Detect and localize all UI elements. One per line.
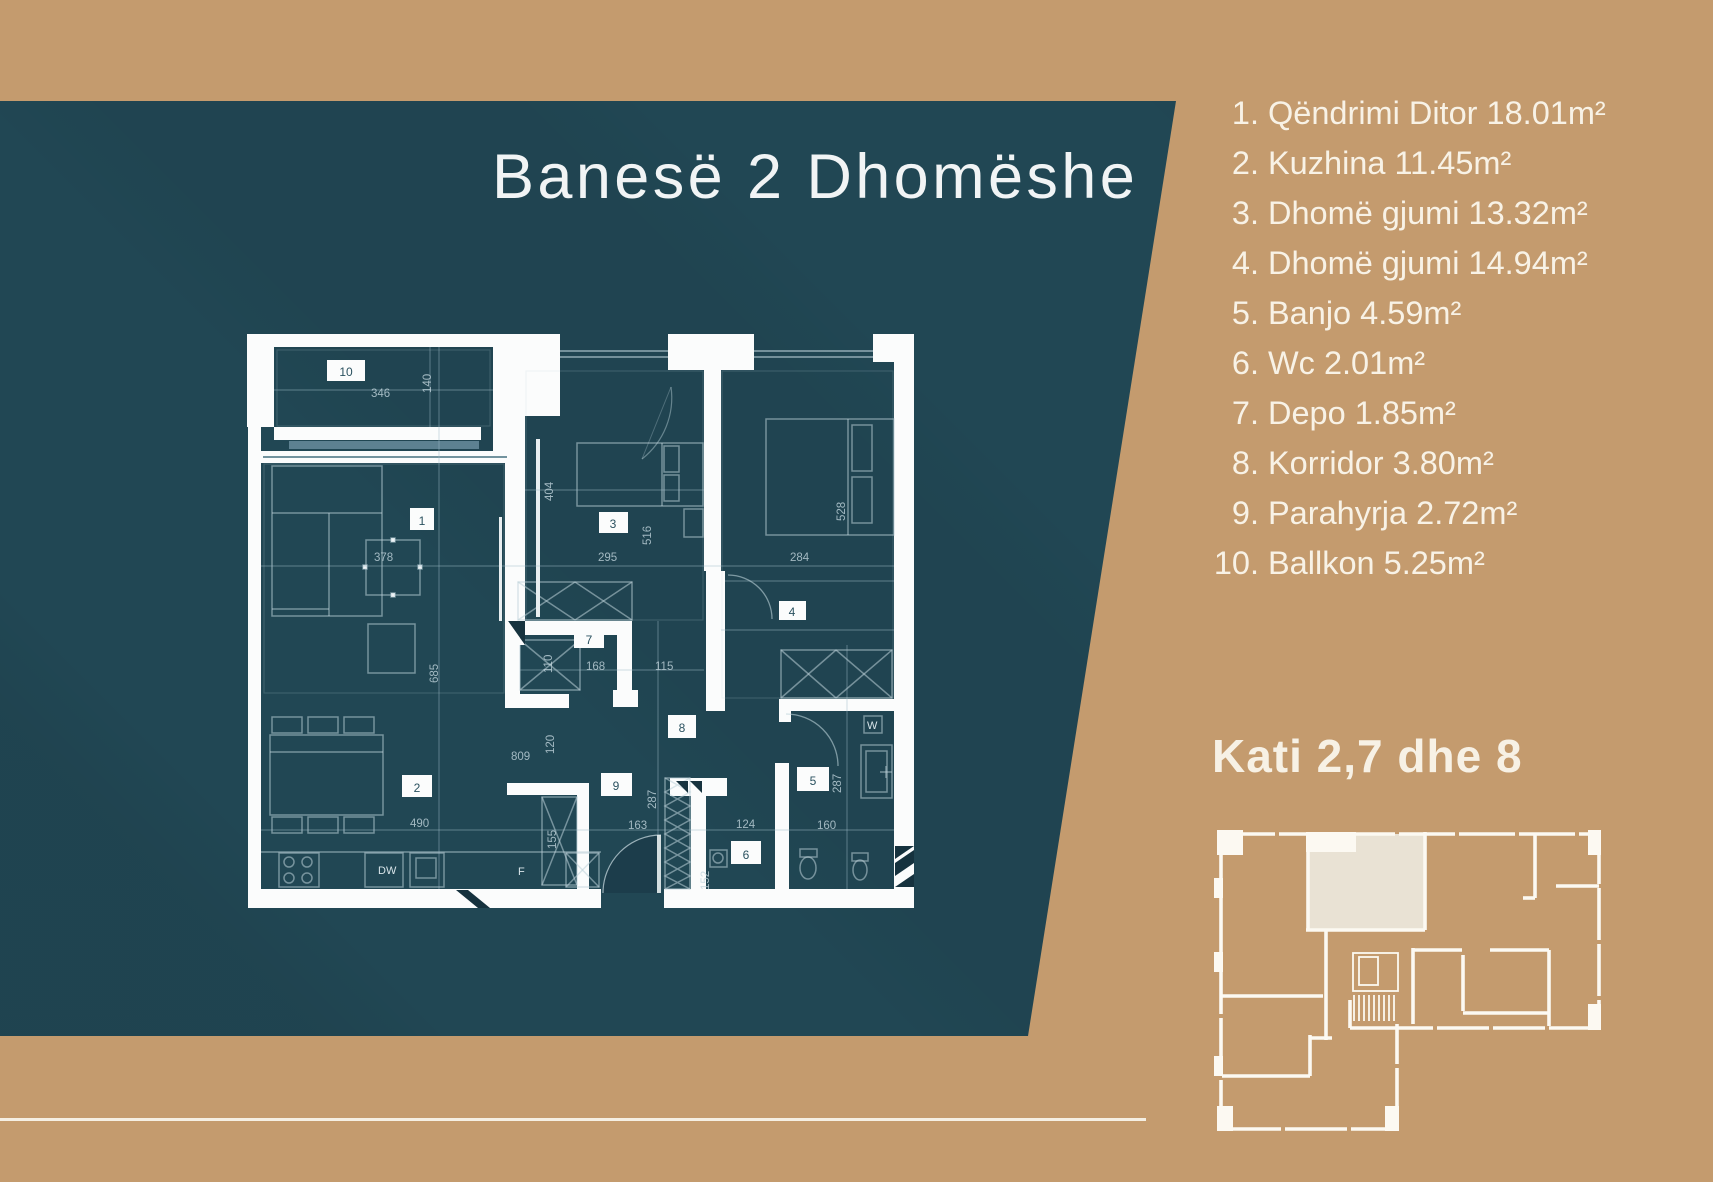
svg-text:110: 110 [543,655,555,673]
svg-text:5: 5 [810,774,817,788]
svg-text:120: 120 [545,735,557,754]
svg-text:4: 4 [789,605,796,619]
svg-text:124: 124 [736,819,756,831]
svg-text:378: 378 [374,552,393,564]
svg-text:DW: DW [378,865,397,877]
svg-text:528: 528 [836,502,848,521]
svg-text:516: 516 [642,526,654,545]
svg-text:287: 287 [647,790,659,809]
svg-text:168: 168 [586,661,605,673]
svg-text:140: 140 [422,374,434,393]
svg-text:6: 6 [743,848,750,862]
svg-text:9: 9 [613,779,620,793]
svg-text:2: 2 [414,781,421,795]
svg-text:163: 163 [628,820,647,832]
svg-text:155: 155 [547,830,559,849]
svg-text:287: 287 [832,774,844,793]
svg-text:284: 284 [790,552,810,564]
svg-text:404: 404 [544,481,556,501]
svg-text:1: 1 [419,514,426,528]
svg-text:7: 7 [586,633,593,647]
svg-text:F: F [518,866,525,878]
svg-text:160: 160 [817,820,836,832]
svg-text:3: 3 [610,517,617,531]
svg-text:346: 346 [371,388,390,400]
svg-text:490: 490 [410,818,429,830]
svg-text:115: 115 [655,661,673,673]
svg-text:295: 295 [598,552,617,564]
svg-text:809: 809 [511,751,530,763]
svg-text:8: 8 [679,721,686,735]
svg-text:W: W [867,720,878,732]
svg-text:685: 685 [429,664,441,683]
svg-text:10: 10 [339,365,353,379]
svg-text:152: 152 [700,871,712,890]
